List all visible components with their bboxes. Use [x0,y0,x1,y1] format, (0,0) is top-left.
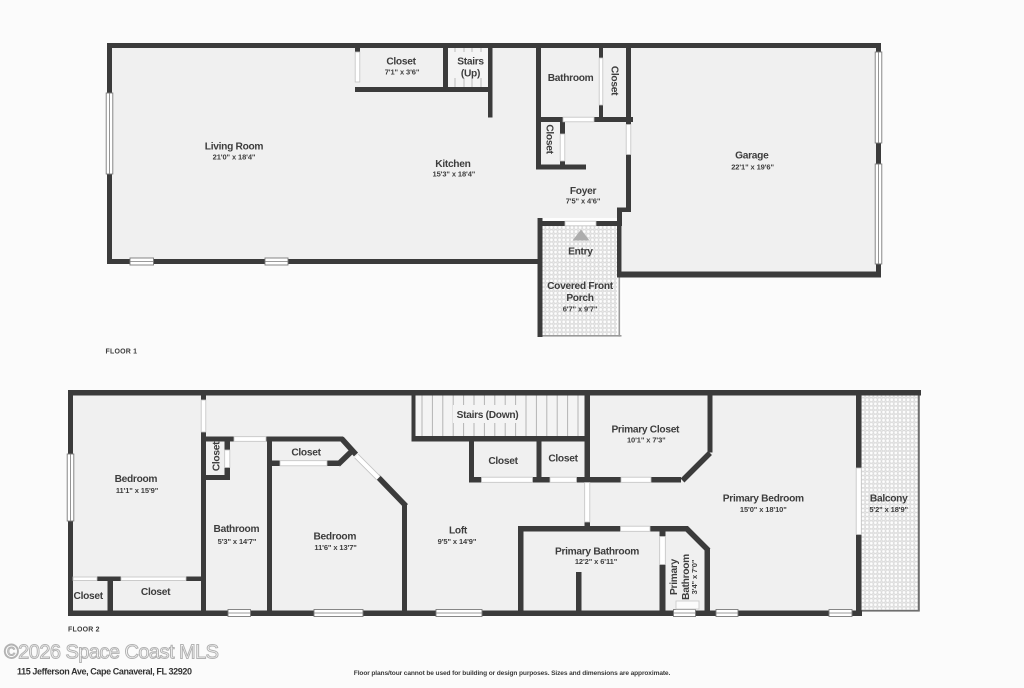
svg-text:11'1" x 15'9": 11'1" x 15'9" [116,486,159,495]
svg-text:12'2" x 6'11": 12'2" x 6'11" [575,557,618,566]
svg-text:9'5" x 14'9": 9'5" x 14'9" [438,537,477,546]
svg-text:7'5" x 4'6": 7'5" x 4'6" [566,197,601,206]
svg-text:10'1" x 7'3": 10'1" x 7'3" [627,435,666,444]
svg-text:Bedroom: Bedroom [313,531,356,542]
svg-text:Closet: Closet [74,591,104,602]
svg-text:15'0" x 18'10": 15'0" x 18'10" [740,505,787,514]
svg-text:22'1" x 19'6": 22'1" x 19'6" [731,163,774,172]
svg-text:Closet: Closet [544,124,555,154]
svg-text:Porch: Porch [566,293,593,304]
svg-text:3'4" x 7'0": 3'4" x 7'0" [690,559,699,594]
svg-text:Entry: Entry [568,247,593,258]
svg-text:Balcony: Balcony [870,493,908,504]
svg-text:Primary: Primary [669,558,680,594]
svg-text:115 Jefferson Ave, Cape Canave: 115 Jefferson Ave, Cape Canaveral, FL 32… [17,667,192,677]
svg-text:Living Room: Living Room [205,142,264,153]
svg-text:FLOOR 2: FLOOR 2 [68,627,100,634]
svg-text:Kitchen: Kitchen [435,159,470,170]
svg-text:Closet: Closet [548,454,578,465]
svg-text:Closet: Closet [291,447,321,458]
svg-text:5'2" x 18'9": 5'2" x 18'9" [869,505,908,514]
svg-text:7'1" x 3'6": 7'1" x 3'6" [385,67,420,76]
svg-text:Foyer: Foyer [570,186,597,197]
svg-text:Primary Bedroom: Primary Bedroom [723,493,804,504]
svg-text:(Up): (Up) [461,69,480,80]
svg-text:FLOOR 1: FLOOR 1 [106,349,138,356]
svg-text:Closet: Closet [141,587,171,598]
svg-text:Closet: Closet [212,441,223,471]
svg-text:Stairs (Down): Stairs (Down) [457,410,519,421]
svg-text:©2026 Space Coast MLS: ©2026 Space Coast MLS [4,642,219,664]
svg-text:21'0" x 18'4": 21'0" x 18'4" [213,153,256,162]
svg-text:Covered Front: Covered Front [547,281,614,292]
svg-text:Closet: Closet [609,66,620,96]
svg-text:Primary Closet: Primary Closet [611,425,680,436]
svg-text:Primary Bathroom: Primary Bathroom [555,547,639,558]
svg-text:Loft: Loft [449,526,468,537]
svg-text:Closet: Closet [488,456,518,467]
svg-text:Floor plans/tour cannot be use: Floor plans/tour cannot be used for buil… [354,670,671,677]
svg-text:Bathroom: Bathroom [548,73,594,84]
svg-text:Garage: Garage [735,151,769,162]
svg-text:6'7" x 9'7": 6'7" x 9'7" [563,304,598,313]
svg-text:Bedroom: Bedroom [115,474,158,485]
svg-text:11'6" x 13'7": 11'6" x 13'7" [314,543,357,552]
svg-text:Closet: Closet [386,56,416,67]
svg-text:Bathroom: Bathroom [214,524,260,535]
svg-text:Stairs: Stairs [457,57,484,68]
svg-text:5'3" x 14'7": 5'3" x 14'7" [218,537,257,546]
svg-text:15'3" x 18'4": 15'3" x 18'4" [433,170,476,179]
